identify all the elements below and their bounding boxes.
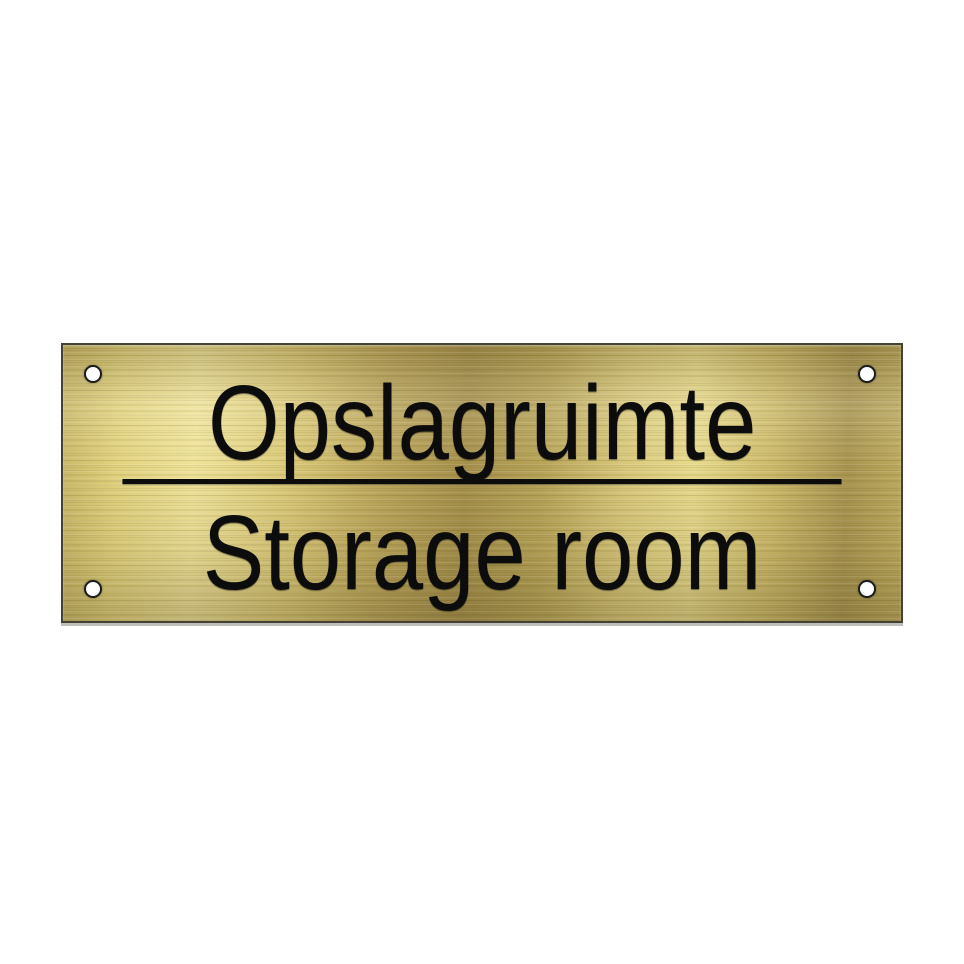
sign-text-primary-label: Opslagruimte <box>208 363 756 483</box>
sign-text-secondary: Storage room <box>63 493 901 613</box>
divider-line <box>123 479 842 484</box>
product-image-canvas: Opslagruimte Storage room <box>0 0 964 964</box>
sign-text-secondary-label: Storage room <box>203 493 762 613</box>
brass-sign-plate: Opslagruimte Storage room <box>61 343 903 623</box>
sign-text-primary: Opslagruimte <box>63 363 901 483</box>
